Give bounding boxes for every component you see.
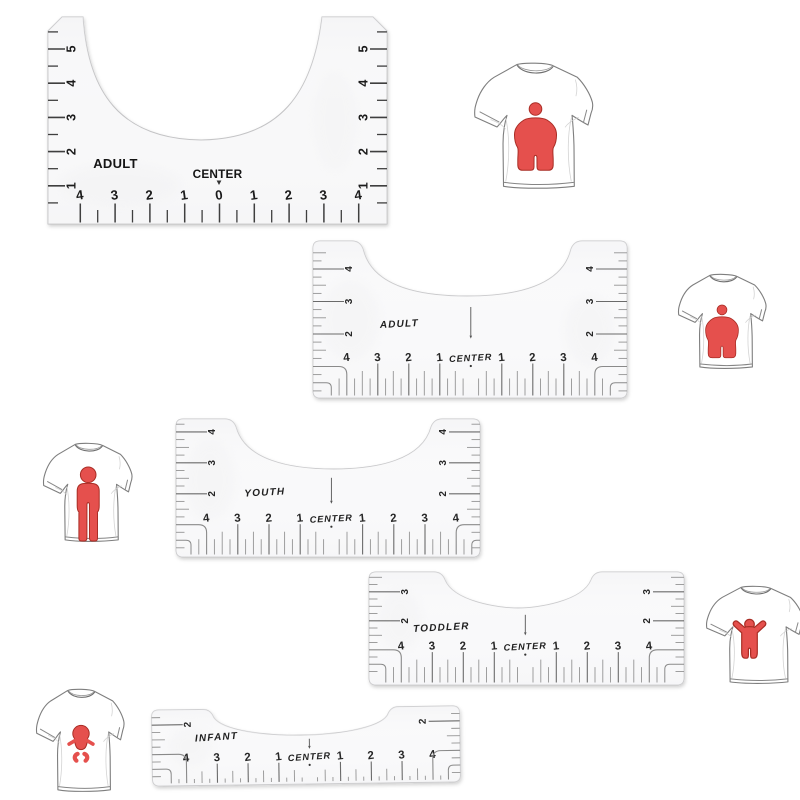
- svg-text:CENTER: CENTER: [193, 167, 243, 181]
- svg-text:4: 4: [344, 266, 355, 272]
- svg-text:2: 2: [438, 491, 449, 497]
- svg-text:4: 4: [357, 80, 371, 87]
- svg-text:3: 3: [234, 512, 242, 525]
- svg-text:3: 3: [421, 512, 429, 525]
- svg-text:2: 2: [400, 618, 411, 624]
- svg-text:5: 5: [65, 45, 79, 52]
- svg-text:2: 2: [207, 491, 218, 497]
- svg-text:2: 2: [459, 640, 467, 653]
- svg-text:2: 2: [642, 618, 653, 624]
- svg-text:3: 3: [357, 114, 371, 121]
- svg-text:2: 2: [344, 331, 355, 337]
- svg-text:2: 2: [529, 352, 537, 365]
- svg-text:2: 2: [390, 512, 398, 525]
- svg-text:4: 4: [207, 429, 218, 435]
- svg-text:ADULT: ADULT: [379, 318, 420, 331]
- svg-text:4: 4: [438, 429, 449, 435]
- svg-text:5: 5: [357, 45, 371, 52]
- svg-text:4: 4: [585, 266, 596, 272]
- svg-text:2: 2: [418, 718, 429, 724]
- svg-text:3: 3: [642, 589, 653, 595]
- svg-text:2: 2: [265, 512, 273, 525]
- svg-text:3: 3: [585, 298, 596, 304]
- svg-text:2: 2: [357, 148, 371, 155]
- svg-text:3: 3: [614, 640, 622, 653]
- svg-text:3: 3: [207, 460, 218, 466]
- svg-text:2: 2: [583, 640, 591, 653]
- svg-text:3: 3: [344, 298, 355, 304]
- svg-text:2: 2: [585, 331, 596, 337]
- svg-text:4: 4: [65, 80, 79, 87]
- svg-text:2: 2: [405, 352, 413, 365]
- svg-text:2: 2: [65, 148, 79, 155]
- svg-text:3: 3: [65, 114, 79, 121]
- svg-text:3: 3: [428, 640, 436, 653]
- svg-text:3: 3: [560, 352, 568, 365]
- svg-text:3: 3: [374, 352, 382, 365]
- svg-text:3: 3: [438, 460, 449, 466]
- svg-text:3: 3: [400, 589, 411, 595]
- svg-text:ADULT: ADULT: [93, 156, 138, 171]
- svg-text:YOUTH: YOUTH: [244, 486, 286, 499]
- svg-text:2: 2: [183, 721, 194, 727]
